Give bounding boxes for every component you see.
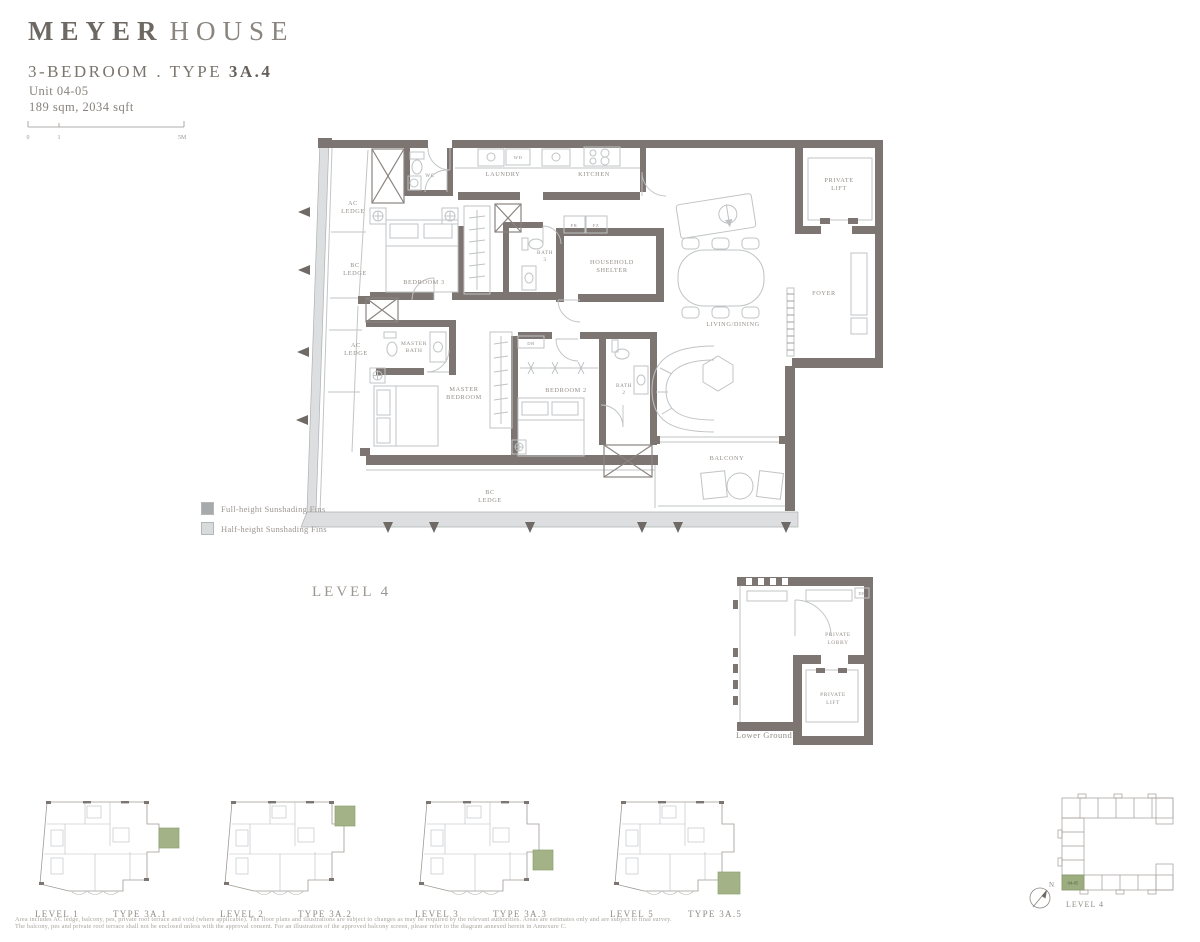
lg-labels: DB PRIVATE LOBBY PRIVATE LIFT bbox=[820, 591, 865, 706]
key-plan: 04-05 N LEVEL 4 bbox=[1020, 780, 1190, 920]
lg-label-db: DB bbox=[858, 591, 865, 596]
compass-north-label: N bbox=[1049, 881, 1054, 889]
legend-half-swatch bbox=[201, 522, 214, 535]
label-ac-ledge-mid2: LEDGE bbox=[344, 350, 368, 357]
disclaimer: Area includes AC ledge, balcony, pes, pr… bbox=[15, 916, 1185, 930]
disclaimer-line1: Area includes AC ledge, balcony, pes, pr… bbox=[15, 916, 1185, 923]
label-bath2: BATH bbox=[616, 383, 632, 389]
main-floor-plan: AC LEDGE BC LEDGE WC LAUNDRY WD KITCHEN … bbox=[296, 130, 900, 542]
mini-plan-3a3: LEVEL 3TYPE 3A.3 bbox=[395, 792, 570, 919]
scale-tick-0: 0 bbox=[27, 135, 30, 141]
mini-3a5-unit-highlight bbox=[718, 872, 740, 894]
foyer-screen-hatch bbox=[787, 294, 794, 350]
label-living-dining: LIVING/DINING bbox=[706, 321, 760, 328]
mini-3a2-unit-highlight bbox=[335, 806, 355, 826]
fin-arrows-left bbox=[296, 207, 310, 425]
label-bedroom3: BEDROOM 3 bbox=[403, 279, 445, 286]
lg-caption: Lower Ground bbox=[736, 730, 793, 740]
label-master-bath: MASTER bbox=[401, 341, 427, 347]
mini-3a1-unit-highlight bbox=[159, 828, 179, 848]
lg-label-private-lobby: PRIVATE bbox=[825, 632, 851, 638]
walls bbox=[318, 138, 883, 511]
legend-half-label: Half-height Sunshading Fins bbox=[221, 524, 327, 534]
lg-lines bbox=[740, 586, 869, 722]
legend-full-label: Full-height Sunshading Fins bbox=[221, 504, 325, 514]
label-foyer: FOYER bbox=[812, 290, 836, 297]
label-bath3: BATH bbox=[537, 250, 553, 256]
label-bc-ledge-left: BC bbox=[350, 262, 360, 269]
lg-label-private-lift2: LIFT bbox=[826, 700, 840, 706]
label-bc-ledge-bottom: BC bbox=[485, 489, 495, 496]
legend-half-height: Half-height Sunshading Fins bbox=[201, 522, 327, 535]
scale-tick-1: 1 bbox=[58, 135, 61, 141]
legend: Full-height Sunshading Fins Half-height … bbox=[201, 502, 327, 542]
disclaimer-line2: The balcony, pes and private roof terrac… bbox=[15, 923, 1185, 930]
label-ac-ledge-top2: LEDGE bbox=[341, 208, 365, 215]
label-bath2-num: 2 bbox=[622, 390, 625, 396]
mini-3a3-unit-highlight bbox=[533, 850, 553, 870]
label-ac-ledge-top: AC bbox=[348, 200, 358, 207]
label-fz: FZ bbox=[593, 223, 600, 228]
label-master-bath2: BATH bbox=[405, 348, 422, 354]
scale-tick-5m: 5M bbox=[178, 135, 187, 141]
label-bedroom2: BEDROOM 2 bbox=[545, 387, 587, 394]
floor-plan-page: MEYERHOUSE 3-BEDROOM . TYPE 3A.4 Unit 04… bbox=[0, 0, 1200, 942]
label-bc-ledge-bottom2: LEDGE bbox=[478, 497, 502, 504]
label-wc: WC bbox=[425, 173, 435, 179]
label-master-bedroom: MASTER bbox=[449, 386, 478, 393]
label-balcony: BALCONY bbox=[710, 455, 745, 462]
scale-bar-lines bbox=[28, 121, 184, 127]
title-type: 3A.4 bbox=[229, 62, 273, 81]
scale-bar: 0 1 5M bbox=[20, 116, 200, 144]
lg-walls bbox=[733, 577, 873, 745]
unit-area: 189 sqm, 2034 sqft bbox=[29, 100, 134, 115]
key-plan-caption: LEVEL 4 bbox=[1066, 900, 1104, 909]
label-bc-ledge-left2: LEDGE bbox=[343, 270, 367, 277]
legend-full-height: Full-height Sunshading Fins bbox=[201, 502, 327, 515]
legend-full-swatch bbox=[201, 502, 214, 515]
brand-light: HOUSE bbox=[170, 16, 295, 46]
room-labels: AC LEDGE BC LEDGE WC LAUNDRY WD KITCHEN … bbox=[341, 155, 853, 504]
label-private-lift2: LIFT bbox=[831, 185, 847, 192]
unit-number: Unit 04-05 bbox=[29, 84, 89, 99]
lg-label-private-lobby2: LOBBY bbox=[827, 640, 848, 646]
lg-label-private-lift: PRIVATE bbox=[820, 692, 846, 698]
label-fr: FR bbox=[571, 223, 578, 228]
label-wd: WD bbox=[514, 155, 523, 160]
mini-plan-3a5-svg bbox=[590, 792, 765, 904]
mini-plan-3a1: LEVEL 1TYPE 3A.1 bbox=[15, 792, 190, 919]
mini-plan-3a1-svg bbox=[15, 792, 190, 904]
brand-bold: MEYER bbox=[28, 16, 164, 46]
label-db: DB bbox=[527, 341, 535, 346]
level-caption: LEVEL 4 bbox=[312, 584, 391, 601]
label-bath3-num: 3 bbox=[543, 257, 546, 263]
compass: N bbox=[1030, 881, 1054, 908]
label-household-shelter2: SHELTER bbox=[596, 267, 627, 274]
label-ac-ledge-mid: AC bbox=[351, 342, 361, 349]
label-kitchen: KITCHEN bbox=[578, 171, 610, 178]
brand-logo: MEYERHOUSE bbox=[28, 16, 295, 47]
mini-plan-3a2: LEVEL 2TYPE 3A.2 bbox=[200, 792, 375, 919]
lower-ground-plan: DB PRIVATE LOBBY PRIVATE LIFT Lower Grou… bbox=[725, 565, 895, 755]
mini-plan-3a2-svg bbox=[200, 792, 375, 904]
key-plan-unit-label: 04-05 bbox=[1068, 881, 1079, 886]
label-private-lift: PRIVATE bbox=[824, 177, 853, 184]
title-prefix: 3-BEDROOM . TYPE bbox=[28, 62, 229, 81]
label-master-bedroom2: BEDROOM bbox=[446, 394, 482, 401]
mini-plan-3a5: LEVEL 5TYPE 3A.5 bbox=[590, 792, 765, 919]
label-laundry: LAUNDRY bbox=[486, 171, 521, 178]
label-household-shelter: HOUSEHOLD bbox=[590, 259, 634, 266]
page-title: 3-BEDROOM . TYPE 3A.4 bbox=[28, 62, 272, 82]
compass-needle bbox=[1042, 890, 1048, 899]
mini-plan-3a3-svg bbox=[395, 792, 570, 904]
